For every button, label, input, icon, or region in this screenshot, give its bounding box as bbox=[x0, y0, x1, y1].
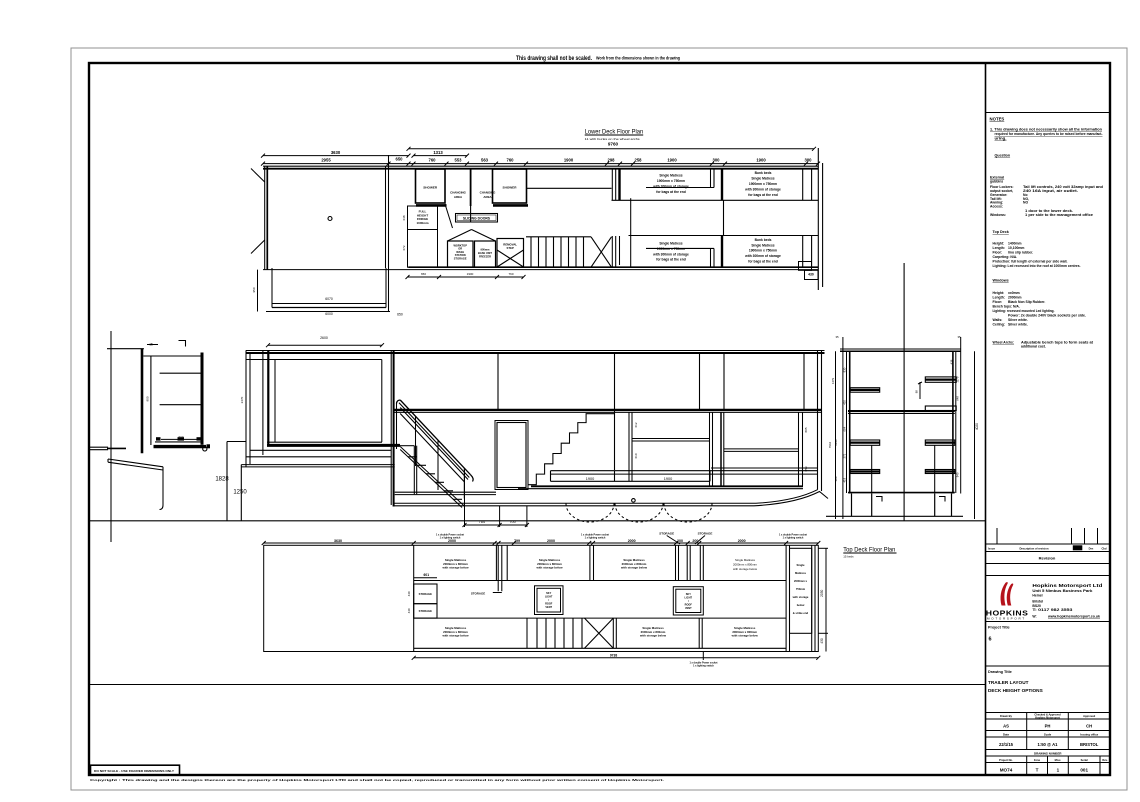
svg-text:Floor:: Floor: bbox=[993, 251, 1003, 255]
svg-text:SHOWER: SHOWER bbox=[503, 186, 518, 190]
svg-text:1444: 1444 bbox=[834, 439, 838, 446]
svg-text:1900: 1900 bbox=[756, 157, 766, 162]
svg-text:with 300mm of storage: with 300mm of storage bbox=[744, 254, 781, 258]
svg-text:2000: 2000 bbox=[628, 539, 636, 543]
svg-text:1900mm x 750mm: 1900mm x 750mm bbox=[749, 182, 777, 186]
svg-text:650: 650 bbox=[421, 272, 426, 276]
svg-text:2955: 2955 bbox=[321, 157, 331, 162]
svg-text:1900mm x 750mm: 1900mm x 750mm bbox=[749, 249, 777, 253]
svg-text:900: 900 bbox=[146, 396, 150, 401]
svg-text:Windows:: Windows: bbox=[990, 213, 1006, 217]
svg-text:CHANGING: CHANGING bbox=[480, 191, 496, 195]
svg-text:required for manufacture. Any: required for manufacture. Any queries to… bbox=[995, 132, 1104, 136]
svg-text:with storage below: with storage below bbox=[535, 566, 563, 570]
svg-text:7964: 7964 bbox=[828, 441, 832, 448]
svg-text:Date: Date bbox=[1003, 732, 1010, 736]
svg-text:15: 15 bbox=[149, 342, 153, 346]
svg-text:750mm: 750mm bbox=[796, 587, 806, 591]
svg-text:Walls:: Walls: bbox=[993, 318, 1003, 322]
svg-text:88: 88 bbox=[914, 390, 918, 394]
svg-text:NOTES: NOTES bbox=[990, 117, 1005, 122]
svg-text:STORAGE: STORAGE bbox=[419, 609, 432, 613]
svg-text:Hopkins Motorsport: Hopkins Motorsport bbox=[1035, 715, 1060, 719]
svg-text:gubbins: gubbins bbox=[990, 180, 1003, 184]
svg-text:1900: 1900 bbox=[667, 157, 677, 162]
svg-text:4020: 4020 bbox=[975, 423, 979, 430]
svg-text:Mattress: Mattress bbox=[795, 571, 807, 575]
svg-text:Project Title: Project Title bbox=[988, 626, 1010, 630]
svg-text:Project No.: Project No. bbox=[999, 758, 1013, 762]
svg-text:930: 930 bbox=[843, 367, 847, 372]
svg-text:1179: 1179 bbox=[956, 376, 960, 382]
svg-text:2000mm: 2000mm bbox=[1008, 296, 1022, 300]
svg-text:900mm: 900mm bbox=[481, 248, 491, 252]
svg-text:Access:: Access: bbox=[990, 204, 1003, 208]
svg-text:650: 650 bbox=[396, 156, 404, 161]
svg-text:1 x lighting switch: 1 x lighting switch bbox=[783, 537, 804, 540]
svg-text:with 300mm of storage: with 300mm of storage bbox=[744, 187, 781, 191]
svg-text:T: T bbox=[1036, 768, 1039, 773]
svg-text:648: 648 bbox=[956, 396, 960, 401]
svg-text:Length:: Length: bbox=[993, 296, 1005, 300]
svg-text:Serial: Serial bbox=[1081, 758, 1088, 762]
svg-text:440: 440 bbox=[407, 608, 411, 613]
svg-text:1900mm x 750mm: 1900mm x 750mm bbox=[657, 179, 685, 183]
svg-text:650: 650 bbox=[397, 313, 403, 317]
svg-text:Description of revision: Description of revision bbox=[1019, 547, 1048, 551]
svg-text:563: 563 bbox=[481, 157, 489, 162]
svg-text:1828: 1828 bbox=[215, 477, 229, 483]
svg-text:1313: 1313 bbox=[433, 150, 443, 155]
svg-text:764: 764 bbox=[479, 520, 485, 524]
svg-text:Floor:: Floor: bbox=[993, 300, 1003, 304]
svg-text:Height:: Height: bbox=[993, 242, 1005, 246]
svg-text:with storage below: with storage below bbox=[620, 566, 648, 570]
svg-text:SLIDING DOORS: SLIDING DOORS bbox=[463, 217, 491, 221]
svg-text:Ceiling:: Ceiling: bbox=[993, 323, 1005, 327]
svg-text:1900: 1900 bbox=[564, 157, 574, 162]
svg-text:1250: 1250 bbox=[233, 490, 247, 496]
svg-text:15 beds: 15 beds bbox=[843, 555, 854, 559]
svg-text:1900: 1900 bbox=[467, 272, 474, 276]
svg-text:600: 600 bbox=[178, 435, 183, 439]
svg-text:Windows: Windows bbox=[993, 279, 1009, 283]
svg-text:9738: 9738 bbox=[610, 653, 618, 657]
svg-text:1900: 1900 bbox=[664, 477, 672, 481]
svg-text:1900: 1900 bbox=[586, 477, 594, 481]
svg-text:2050: 2050 bbox=[820, 590, 824, 597]
svg-text:Revision: Revision bbox=[1039, 556, 1056, 561]
svg-text:Approved: Approved bbox=[1083, 714, 1096, 718]
svg-text:553: 553 bbox=[455, 157, 463, 162]
svg-text:AREA: AREA bbox=[483, 195, 492, 199]
svg-text:200: 200 bbox=[677, 539, 683, 543]
svg-text:VENT: VENT bbox=[685, 607, 692, 610]
svg-text:Single Matress: Single Matress bbox=[751, 243, 774, 247]
svg-text:1400mm: 1400mm bbox=[1008, 242, 1022, 246]
svg-text:with 300mm of storage: with 300mm of storage bbox=[652, 184, 689, 188]
svg-text:STORAGE: STORAGE bbox=[698, 532, 713, 536]
svg-text:Question: Question bbox=[995, 154, 1011, 158]
svg-text:35: 35 bbox=[835, 335, 839, 339]
svg-text:1 x lighting switch: 1 x lighting switch bbox=[585, 537, 606, 540]
svg-text:Issue: Issue bbox=[988, 547, 995, 551]
svg-text:1900mm x 750mm: 1900mm x 750mm bbox=[657, 247, 685, 251]
svg-text:FREEZER: FREEZER bbox=[479, 255, 491, 259]
svg-text:1479: 1479 bbox=[831, 377, 835, 384]
svg-text:Lighting: recessed mounted Le: Lighting: recessed mounted Led lighting. bbox=[993, 309, 1055, 313]
svg-text:240 16A input, air outlet.: 240 16A input, air outlet. bbox=[1023, 189, 1078, 193]
svg-text:DRAWING NUMBER: DRAWING NUMBER bbox=[1034, 751, 1062, 755]
svg-text:with storage below: with storage below bbox=[733, 567, 758, 571]
svg-text:1: 1 bbox=[1057, 768, 1060, 773]
svg-text:Drawn By: Drawn By bbox=[1000, 714, 1013, 718]
svg-text:with storage below: with storage below bbox=[441, 634, 469, 638]
svg-text:www.hopkinsmotorsport.co.uk: www.hopkinsmotorsport.co.uk bbox=[1047, 614, 1100, 618]
svg-text:Single Matress: Single Matress bbox=[659, 173, 682, 177]
svg-text:805: 805 bbox=[804, 427, 808, 432]
svg-text:STORAGE: STORAGE bbox=[419, 592, 432, 596]
svg-text:2000mm x: 2000mm x bbox=[794, 579, 808, 583]
svg-text:BRISTOL: BRISTOL bbox=[1080, 742, 1099, 747]
svg-text:799: 799 bbox=[514, 539, 520, 543]
svg-text:SHOWER: SHOWER bbox=[423, 186, 438, 190]
svg-text:1. This drawing does not neces: 1. This drawing does not necessarily sho… bbox=[990, 128, 1102, 132]
svg-text:430: 430 bbox=[820, 638, 824, 644]
svg-text:760: 760 bbox=[507, 157, 515, 162]
svg-text:Carpeting: N/A.: Carpeting: N/A. bbox=[993, 255, 1018, 259]
svg-text:Issuing office: Issuing office bbox=[1080, 732, 1098, 736]
svg-text:258: 258 bbox=[635, 157, 643, 162]
svg-text:for bags at the end: for bags at the end bbox=[748, 193, 778, 197]
svg-text:DO NOT SCALE - USE FIGURED DIM: DO NOT SCALE - USE FIGURED DIMENSIONS ON… bbox=[94, 769, 174, 773]
svg-text:3630: 3630 bbox=[334, 539, 342, 543]
svg-text:438: 438 bbox=[950, 359, 954, 364]
svg-text:Single Matress: Single Matress bbox=[751, 177, 774, 181]
svg-text:for bags at the end: for bags at the end bbox=[656, 190, 686, 194]
svg-text:1 x lighting switch: 1 x lighting switch bbox=[693, 664, 714, 667]
svg-text:Black Non Slip Rubber.: Black Non Slip Rubber. bbox=[1008, 300, 1045, 304]
svg-text:Single Mattress: Single Mattress bbox=[735, 558, 755, 562]
svg-text:6: 6 bbox=[989, 637, 992, 643]
svg-text:Wheel Archs:: Wheel Archs: bbox=[993, 341, 1015, 345]
svg-text:Unit 5 Nimbus Business Park: Unit 5 Nimbus Business Park bbox=[1032, 589, 1092, 593]
svg-text:001: 001 bbox=[1080, 768, 1088, 773]
svg-text:Hemel: Hemel bbox=[1032, 593, 1042, 597]
svg-text:STORAGE: STORAGE bbox=[454, 256, 467, 260]
svg-text:Zone: Zone bbox=[1034, 758, 1041, 762]
svg-text:Hopkins Motorsport Ltd: Hopkins Motorsport Ltd bbox=[1032, 583, 1102, 589]
svg-text:Work from the dimensions shown: Work from the dimensions shown in the dr… bbox=[596, 56, 680, 61]
svg-text:CHANGING: CHANGING bbox=[450, 191, 466, 195]
svg-text:2000mm x 800mm: 2000mm x 800mm bbox=[733, 563, 758, 567]
svg-text:Height:: Height: bbox=[993, 291, 1005, 295]
svg-text:TRAILER LAYOUT: TRAILER LAYOUT bbox=[988, 680, 1029, 685]
svg-text:with storage: with storage bbox=[792, 595, 809, 599]
svg-text:700: 700 bbox=[509, 520, 515, 524]
svg-text:Drawing Title: Drawing Title bbox=[988, 670, 1012, 674]
svg-text:STORAGE: STORAGE bbox=[659, 532, 674, 536]
svg-text:Bristol: Bristol bbox=[1032, 599, 1043, 603]
svg-text:460: 460 bbox=[834, 476, 838, 481]
svg-text:This drawing shall not be scal: This drawing shall not be scaled. bbox=[516, 56, 592, 62]
svg-text:940: 940 bbox=[956, 472, 960, 477]
svg-text:Single: Single bbox=[796, 563, 805, 567]
svg-text:6000: 6000 bbox=[325, 312, 333, 316]
svg-text:419: 419 bbox=[843, 477, 847, 482]
svg-text:Top Deck: Top Deck bbox=[993, 230, 1010, 234]
svg-text:853: 853 bbox=[804, 466, 808, 471]
svg-text:MOTORSPORT: MOTORSPORT bbox=[987, 617, 1026, 621]
svg-text:additional cost.: additional cost. bbox=[1021, 345, 1046, 349]
svg-text:1:50 @ A1: 1:50 @ A1 bbox=[1038, 742, 1059, 747]
svg-text:CH: CH bbox=[1086, 724, 1092, 729]
svg-text:AS: AS bbox=[1003, 724, 1009, 729]
svg-text:22/1/15: 22/1/15 bbox=[999, 742, 1014, 747]
svg-text:Bunk beds: Bunk beds bbox=[755, 171, 772, 175]
svg-text:200: 200 bbox=[692, 539, 698, 543]
svg-text:10,100mm: 10,100mm bbox=[1008, 246, 1024, 250]
svg-text:T: 0117 982 3553: T: 0117 982 3553 bbox=[1032, 608, 1072, 612]
svg-text:Copyright : This drawing and t: Copyright : This drawing and the designs… bbox=[90, 778, 664, 782]
svg-text:1000mm: 1000mm bbox=[416, 221, 428, 225]
svg-text:Drn: Drn bbox=[1089, 547, 1094, 551]
svg-text:760: 760 bbox=[508, 272, 513, 276]
svg-text:35: 35 bbox=[957, 335, 961, 339]
svg-text:9760: 9760 bbox=[608, 141, 619, 146]
svg-text:760: 760 bbox=[429, 157, 437, 162]
svg-text:610: 610 bbox=[634, 453, 638, 458]
svg-text:2470: 2470 bbox=[240, 396, 244, 403]
svg-text:for bags at the end: for bags at the end bbox=[656, 258, 686, 262]
svg-text:430: 430 bbox=[808, 273, 814, 277]
svg-text:with storage below: with storage below bbox=[441, 566, 469, 570]
svg-text:371: 371 bbox=[843, 453, 847, 458]
svg-text:BASE UNIT: BASE UNIT bbox=[478, 251, 492, 255]
svg-text:BS20: BS20 bbox=[1032, 604, 1041, 608]
svg-text:uring.: uring. bbox=[995, 137, 1007, 141]
svg-text:STORAGE: STORAGE bbox=[471, 592, 485, 596]
svg-text:440: 440 bbox=[407, 591, 411, 596]
svg-text:Rev.: Rev. bbox=[1102, 758, 1108, 762]
svg-text:Length:: Length: bbox=[993, 246, 1005, 250]
svg-text:664: 664 bbox=[843, 426, 847, 431]
svg-text:PH: PH bbox=[1045, 724, 1051, 729]
svg-text:Power: 2x double 240V blac: Power: 2x double 240V black sockets per … bbox=[1008, 314, 1086, 318]
svg-text:xx0mm: xx0mm bbox=[1008, 291, 1020, 295]
svg-text:2000: 2000 bbox=[547, 539, 555, 543]
svg-text:601: 601 bbox=[424, 573, 430, 577]
svg-text:for bags at the end: for bags at the end bbox=[748, 260, 778, 264]
svg-text:300: 300 bbox=[805, 157, 813, 162]
svg-text:672: 672 bbox=[402, 245, 406, 250]
svg-text:W:: W: bbox=[1032, 614, 1036, 618]
svg-text:Bench tops: N/A.: Bench tops: N/A. bbox=[993, 305, 1020, 309]
svg-text:648: 648 bbox=[402, 215, 406, 220]
svg-text:Misc.: Misc. bbox=[1055, 758, 1062, 762]
svg-text:612: 612 bbox=[634, 422, 638, 427]
svg-text:2000: 2000 bbox=[448, 539, 456, 543]
svg-text:Silver white.: Silver white. bbox=[1008, 318, 1028, 322]
svg-text:DECK HEIGHT OPTIONS: DECK HEIGHT OPTIONS bbox=[988, 688, 1043, 693]
svg-text:Single Matress: Single Matress bbox=[659, 242, 682, 246]
svg-text:STEP: STEP bbox=[507, 246, 514, 250]
svg-text:with storage below: with storage below bbox=[731, 634, 759, 638]
svg-text:950: 950 bbox=[252, 287, 256, 292]
svg-text:with 300mm of storage: with 300mm of storage bbox=[652, 252, 689, 256]
svg-text:Ckd: Ckd bbox=[1101, 547, 1106, 551]
svg-text:Scale: Scale bbox=[1044, 732, 1052, 736]
svg-text:NO: NO bbox=[1023, 201, 1028, 205]
svg-text:HOPKINS: HOPKINS bbox=[986, 609, 1029, 618]
svg-text:lino slip rubber.: lino slip rubber. bbox=[1008, 251, 1033, 255]
svg-text:1 per side to the management o: 1 per side to the management office bbox=[1025, 213, 1093, 217]
svg-text:AREA: AREA bbox=[454, 195, 463, 199]
svg-text:with storage below: with storage below bbox=[639, 634, 667, 638]
svg-text:2600: 2600 bbox=[320, 336, 328, 340]
svg-text:6070: 6070 bbox=[325, 297, 333, 301]
svg-text:2000: 2000 bbox=[738, 539, 746, 543]
svg-text:MO74: MO74 bbox=[1000, 768, 1013, 773]
svg-text:Lighting: Led recessed into: Lighting: Led recessed into the roof at … bbox=[993, 264, 1081, 268]
svg-text:Protection: full length of ext: Protection: full length of external per … bbox=[993, 260, 1068, 264]
svg-text:Silver white.: Silver white. bbox=[1008, 323, 1028, 327]
svg-text:below: below bbox=[797, 603, 806, 607]
svg-text:Bunk beds: Bunk beds bbox=[755, 238, 772, 242]
svg-text:VENT: VENT bbox=[545, 606, 552, 609]
svg-text:3630: 3630 bbox=[331, 150, 341, 155]
svg-text:410: 410 bbox=[843, 400, 847, 405]
svg-text:& strike end: & strike end bbox=[793, 611, 809, 615]
